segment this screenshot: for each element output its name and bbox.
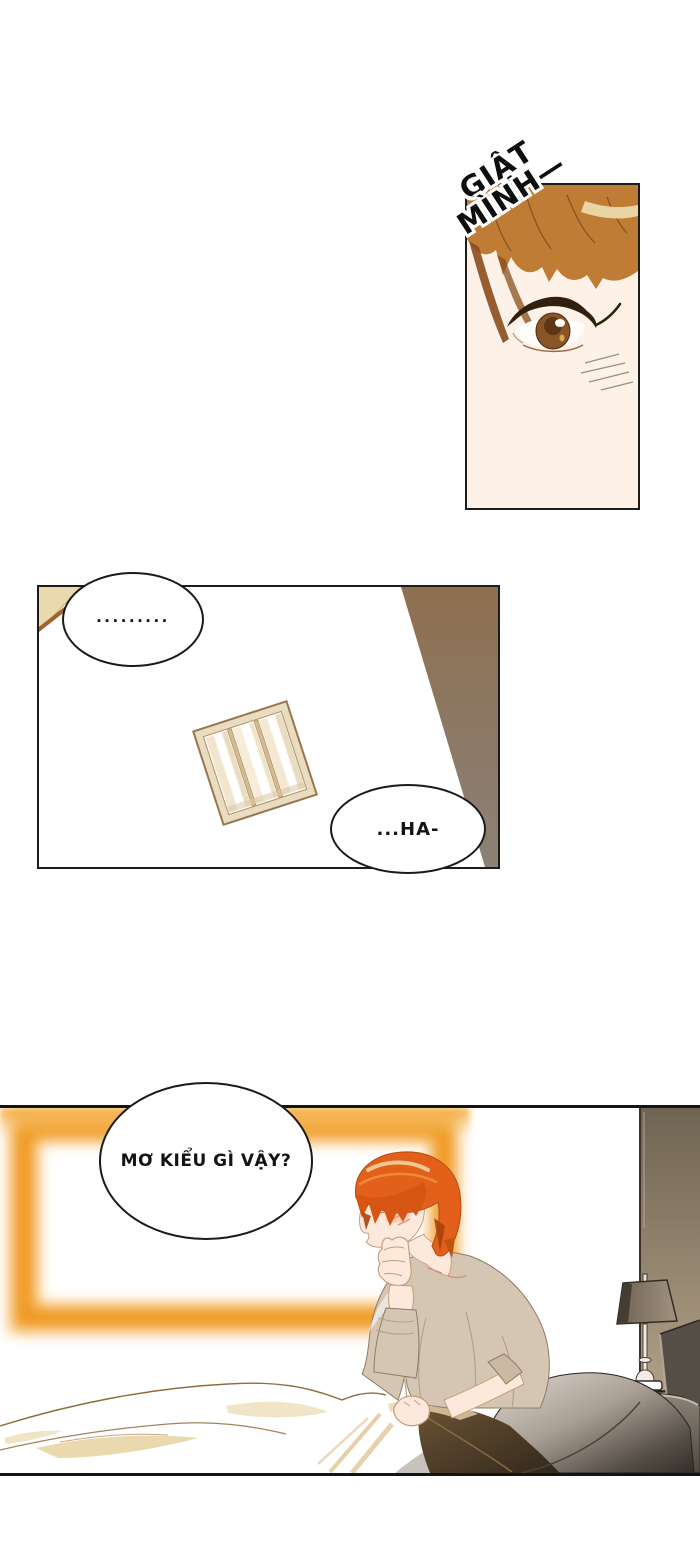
lamp-stem — [643, 1324, 647, 1374]
speech-bubble-dream: MƠ KIỂU GÌ VẬY? — [99, 1082, 313, 1240]
panel-eye-closeup — [465, 183, 640, 510]
comic-page: GIẬT MÌNH— — [0, 0, 700, 1546]
speech-bubble-ha: ...HA- — [330, 784, 486, 874]
wrist — [389, 1285, 414, 1310]
hand-gripping — [394, 1396, 430, 1426]
speech-text-ha: ...HA- — [377, 819, 440, 840]
speech-bubble-silence: ......... — [62, 572, 204, 667]
speech-text-dream: MƠ KIỂU GÌ VẬY? — [121, 1151, 292, 1171]
speech-text-silence: ......... — [96, 608, 170, 626]
eye-closeup-art — [467, 185, 638, 508]
